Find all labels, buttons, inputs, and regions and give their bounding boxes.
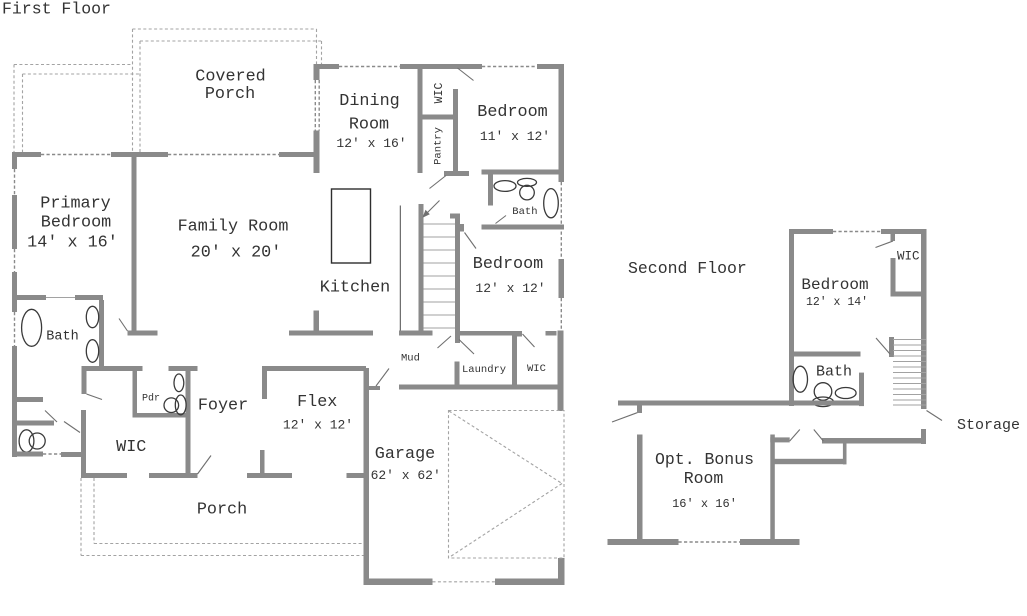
- svg-text:11' x 12': 11' x 12': [480, 129, 550, 144]
- svg-text:Garage: Garage: [375, 445, 435, 464]
- svg-text:12' x 12': 12' x 12': [475, 281, 545, 296]
- svg-text:Bedroom: Bedroom: [801, 276, 868, 294]
- svg-text:Pdr: Pdr: [142, 393, 160, 405]
- svg-text:Bedroom: Bedroom: [473, 255, 544, 274]
- svg-text:WIC: WIC: [897, 250, 920, 264]
- svg-text:14' x 16': 14' x 16': [27, 234, 118, 253]
- svg-text:Family Room: Family Room: [178, 218, 289, 237]
- svg-text:Storage: Storage: [957, 417, 1020, 434]
- svg-text:Mud: Mud: [401, 353, 420, 365]
- svg-text:12' x 16': 12' x 16': [336, 136, 406, 151]
- svg-text:Opt. Bonus: Opt. Bonus: [655, 450, 754, 469]
- svg-text:Second Floor: Second Floor: [628, 259, 747, 278]
- svg-text:WIC: WIC: [116, 438, 146, 457]
- svg-text:Dining: Dining: [339, 92, 399, 111]
- svg-text:Porch: Porch: [197, 501, 247, 520]
- svg-text:Bath: Bath: [46, 330, 78, 345]
- svg-text:Bedroom: Bedroom: [477, 103, 548, 122]
- svg-text:20' x 20': 20' x 20': [191, 244, 282, 263]
- svg-text:Bath: Bath: [816, 364, 852, 381]
- svg-text:Room: Room: [349, 116, 389, 135]
- svg-text:12' x 12': 12' x 12': [283, 418, 353, 433]
- svg-text:12' x 14': 12' x 14': [806, 296, 868, 309]
- svg-text:Bath: Bath: [512, 206, 537, 218]
- svg-text:Covered: Covered: [195, 68, 266, 87]
- svg-text:Foyer: Foyer: [198, 397, 248, 416]
- svg-text:Bedroom: Bedroom: [41, 214, 112, 233]
- svg-text:Laundry: Laundry: [462, 364, 506, 376]
- svg-text:Porch: Porch: [205, 85, 255, 104]
- svg-text:Primary: Primary: [40, 195, 111, 214]
- svg-text:Pantry: Pantry: [433, 127, 445, 165]
- svg-text:WIC: WIC: [527, 363, 546, 375]
- svg-text:Flex: Flex: [297, 393, 337, 412]
- svg-text:WIC: WIC: [433, 83, 446, 104]
- svg-text:16' x 16': 16' x 16': [672, 497, 737, 511]
- svg-text:Room: Room: [684, 469, 724, 488]
- svg-text:First Floor: First Floor: [2, 0, 111, 19]
- svg-text:Kitchen: Kitchen: [320, 279, 391, 298]
- svg-text:62' x 62': 62' x 62': [371, 468, 441, 483]
